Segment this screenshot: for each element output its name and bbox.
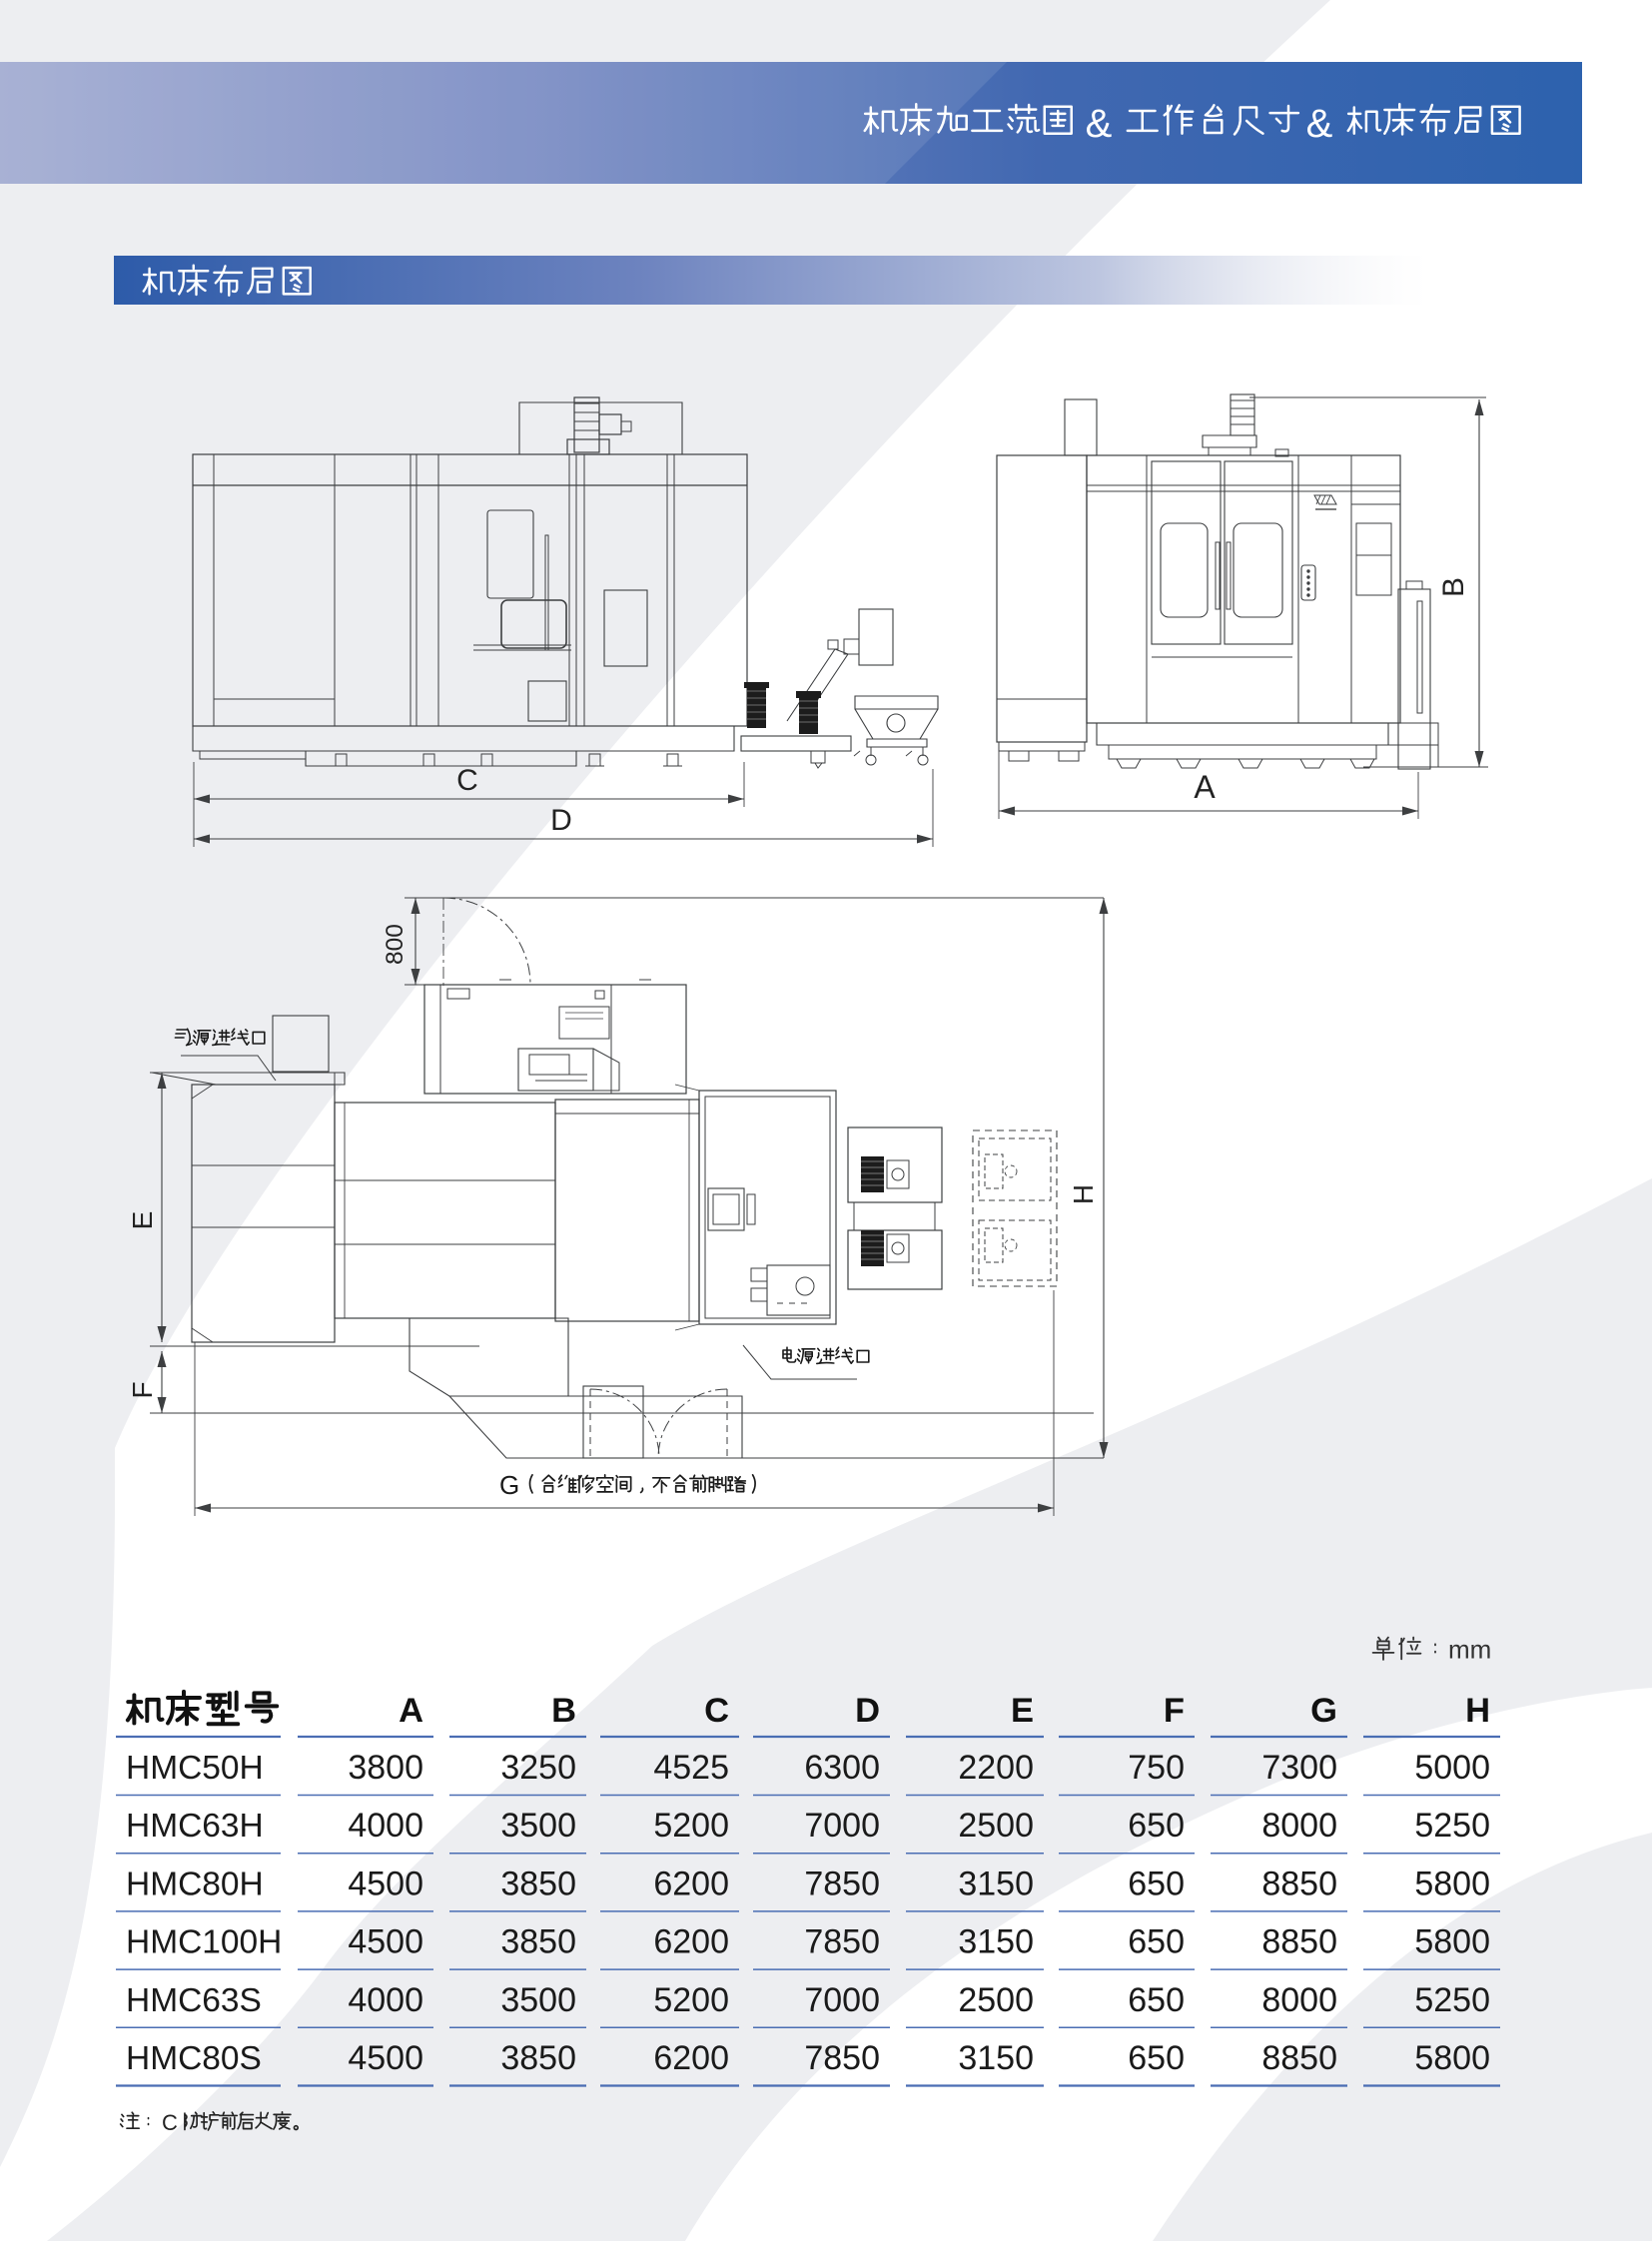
svg-text:6200: 6200: [653, 1923, 729, 1961]
svg-text:8000: 8000: [1261, 1807, 1337, 1845]
svg-text:5200: 5200: [653, 1807, 729, 1845]
svg-text:G: G: [499, 1470, 519, 1500]
svg-text:2500: 2500: [958, 1807, 1034, 1845]
svg-text:A: A: [399, 1692, 423, 1730]
svg-text:7000: 7000: [804, 1807, 880, 1845]
svg-text:4525: 4525: [653, 1749, 729, 1787]
svg-text:4500: 4500: [348, 1923, 423, 1961]
svg-text:4000: 4000: [348, 1981, 423, 2019]
svg-text:650: 650: [1128, 1981, 1185, 2019]
svg-text:8850: 8850: [1261, 1865, 1337, 1902]
svg-text:6300: 6300: [804, 1749, 880, 1787]
svg-text:5250: 5250: [1414, 1807, 1490, 1845]
svg-text:5800: 5800: [1414, 1865, 1490, 1902]
svg-text:5800: 5800: [1414, 1923, 1490, 1961]
svg-text:2200: 2200: [958, 1749, 1034, 1787]
svg-text:3150: 3150: [958, 2039, 1034, 2077]
svg-text:3500: 3500: [500, 1807, 576, 1845]
svg-text:F: F: [1164, 1692, 1185, 1730]
svg-text:B: B: [551, 1692, 576, 1730]
svg-text:7000: 7000: [804, 1981, 880, 2019]
svg-text:3150: 3150: [958, 1923, 1034, 1961]
svg-text:750: 750: [1128, 1749, 1185, 1787]
svg-text:3500: 3500: [500, 1981, 576, 2019]
svg-text:D: D: [550, 804, 572, 837]
svg-text:3850: 3850: [500, 1865, 576, 1902]
svg-text:4500: 4500: [348, 1865, 423, 1902]
svg-text:650: 650: [1128, 1923, 1185, 1961]
svg-text:D: D: [855, 1692, 880, 1730]
svg-text:6200: 6200: [653, 1865, 729, 1902]
svg-text:3150: 3150: [958, 1865, 1034, 1902]
svg-text:4000: 4000: [348, 1807, 423, 1845]
svg-text:H: H: [1465, 1692, 1490, 1730]
svg-text:8000: 8000: [1261, 1981, 1337, 2019]
svg-text:HMC50H: HMC50H: [126, 1750, 264, 1787]
svg-text:HMC80S: HMC80S: [126, 2040, 262, 2077]
svg-text:E: E: [127, 1211, 158, 1230]
svg-text:7300: 7300: [1261, 1749, 1337, 1787]
svg-text:HMC63H: HMC63H: [126, 1808, 264, 1845]
svg-text:H: H: [1068, 1184, 1099, 1204]
svg-text:800: 800: [382, 924, 409, 965]
svg-text:HMC100H: HMC100H: [126, 1924, 282, 1961]
svg-text:650: 650: [1128, 2039, 1185, 2077]
svg-text:3250: 3250: [500, 1749, 576, 1787]
svg-text:6200: 6200: [653, 2039, 729, 2077]
svg-text:F: F: [127, 1381, 158, 1398]
svg-text:A: A: [1194, 769, 1216, 805]
svg-text:8850: 8850: [1261, 1923, 1337, 1961]
svg-text:C: C: [162, 2110, 178, 2135]
svg-text:C: C: [704, 1692, 729, 1730]
svg-text:mm: mm: [1448, 1634, 1491, 1664]
svg-text:&: &: [1306, 102, 1333, 146]
svg-text:2500: 2500: [958, 1981, 1034, 2019]
svg-text:3800: 3800: [348, 1749, 423, 1787]
svg-text:3850: 3850: [500, 2039, 576, 2077]
svg-text:HMC63S: HMC63S: [126, 1982, 262, 2019]
svg-text:7850: 7850: [804, 1865, 880, 1902]
svg-text:5800: 5800: [1414, 2039, 1490, 2077]
svg-text:650: 650: [1128, 1807, 1185, 1845]
svg-text:5200: 5200: [653, 1981, 729, 2019]
svg-text:7850: 7850: [804, 2039, 880, 2077]
svg-text:650: 650: [1128, 1865, 1185, 1902]
svg-text:C: C: [456, 764, 478, 797]
svg-text:8850: 8850: [1261, 2039, 1337, 2077]
svg-text:4500: 4500: [348, 2039, 423, 2077]
svg-text:5000: 5000: [1414, 1749, 1490, 1787]
svg-text:7850: 7850: [804, 1923, 880, 1961]
svg-text:5250: 5250: [1414, 1981, 1490, 2019]
svg-text:HMC80H: HMC80H: [126, 1866, 264, 1902]
svg-text:&: &: [1086, 102, 1113, 146]
svg-text:3850: 3850: [500, 1923, 576, 1961]
svg-text:B: B: [1437, 577, 1470, 597]
svg-text:E: E: [1011, 1692, 1034, 1730]
svg-text:G: G: [1310, 1692, 1337, 1730]
